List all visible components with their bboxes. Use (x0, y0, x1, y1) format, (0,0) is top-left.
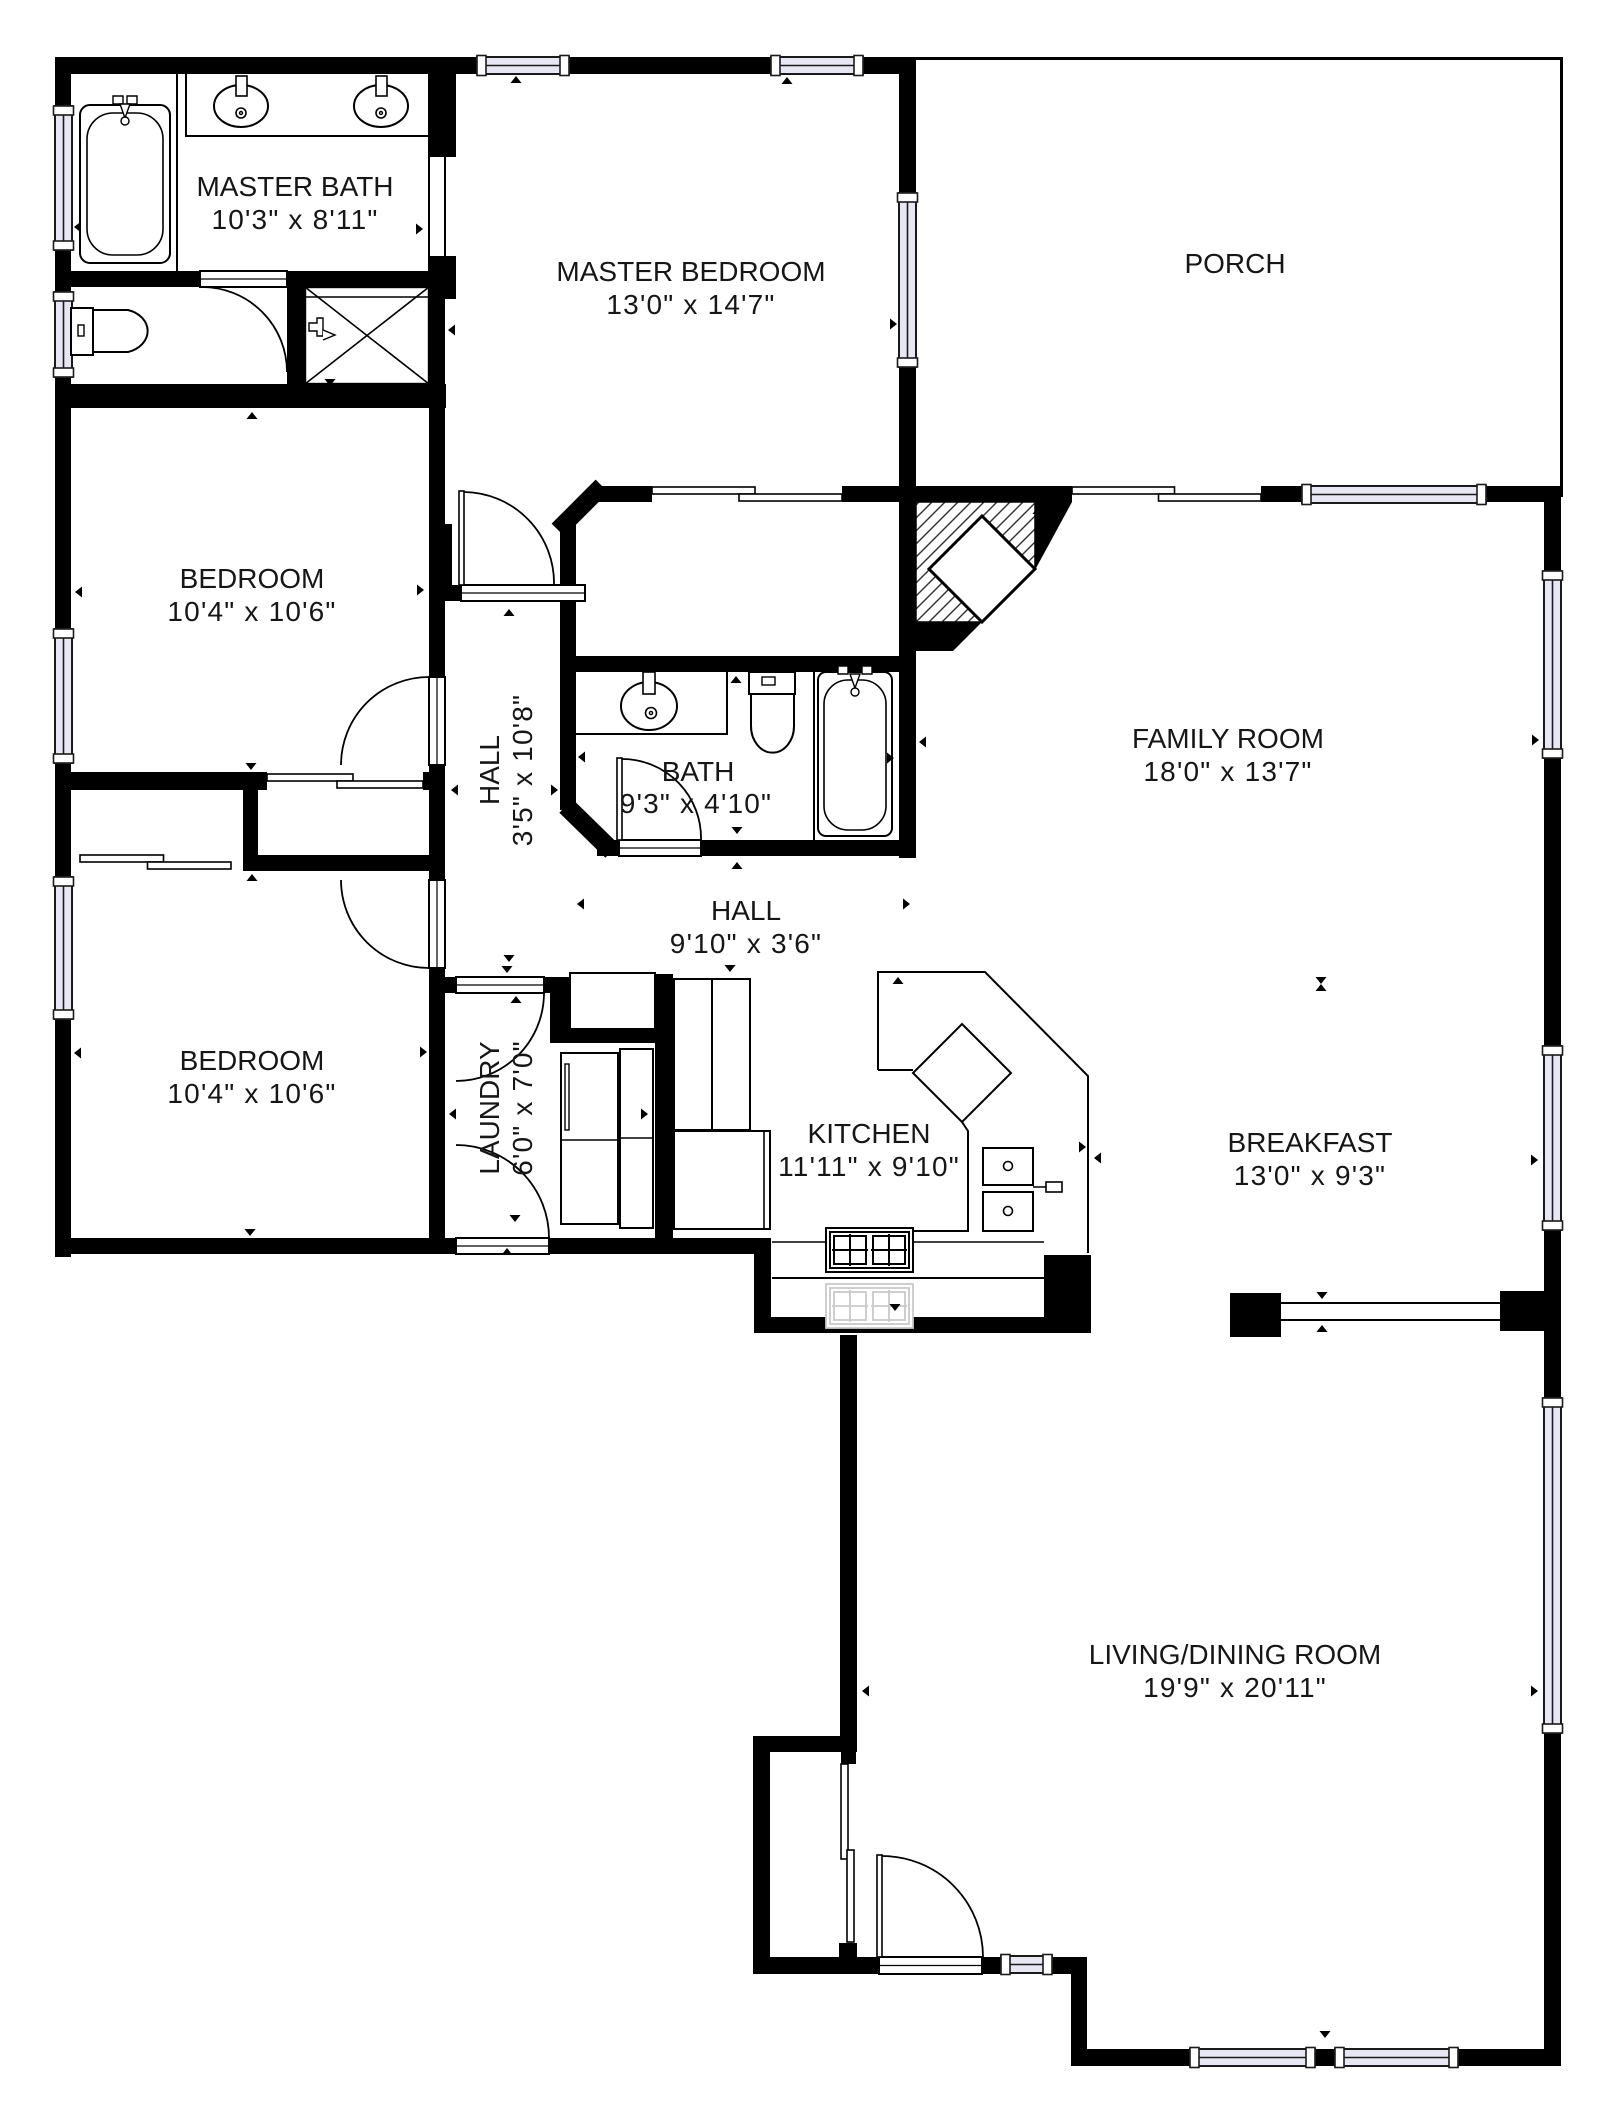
svg-text:MASTER BATH: MASTER BATH (196, 171, 393, 202)
svg-text:10'3" x 8'11": 10'3" x 8'11" (211, 204, 378, 235)
svg-text:MASTER BEDROOM: MASTER BEDROOM (556, 256, 825, 287)
svg-text:10'4" x 10'6": 10'4" x 10'6" (167, 1078, 336, 1109)
svg-text:HALL: HALL (474, 735, 505, 805)
svg-text:13'0" x 14'7": 13'0" x 14'7" (606, 289, 775, 320)
svg-text:HALL: HALL (711, 895, 781, 926)
svg-text:LIVING/DINING ROOM: LIVING/DINING ROOM (1089, 1639, 1381, 1670)
svg-text:FAMILY ROOM: FAMILY ROOM (1132, 723, 1324, 754)
svg-text:LAUNDRY: LAUNDRY (474, 1041, 505, 1175)
svg-text:19'9" x 20'11": 19'9" x 20'11" (1143, 1672, 1327, 1703)
svg-text:11'11" x 9'10": 11'11" x 9'10" (778, 1151, 960, 1182)
svg-text:10'4" x 10'6": 10'4" x 10'6" (167, 596, 336, 627)
svg-text:BEDROOM: BEDROOM (180, 563, 325, 594)
svg-text:9'3" x 4'10": 9'3" x 4'10" (620, 788, 772, 819)
svg-text:13'0" x 9'3": 13'0" x 9'3" (1234, 1160, 1386, 1191)
svg-text:6'0" x 7'0": 6'0" x 7'0" (507, 1040, 538, 1176)
svg-text:3'5" x 10'8": 3'5" x 10'8" (507, 694, 538, 846)
svg-text:PORCH: PORCH (1184, 248, 1285, 279)
svg-text:9'10" x 3'6": 9'10" x 3'6" (670, 928, 822, 959)
svg-text:KITCHEN: KITCHEN (808, 1118, 931, 1149)
svg-text:BATH: BATH (662, 756, 735, 787)
svg-text:18'0" x 13'7": 18'0" x 13'7" (1143, 756, 1312, 787)
svg-text:BEDROOM: BEDROOM (180, 1045, 325, 1076)
svg-text:BREAKFAST: BREAKFAST (1228, 1127, 1393, 1158)
